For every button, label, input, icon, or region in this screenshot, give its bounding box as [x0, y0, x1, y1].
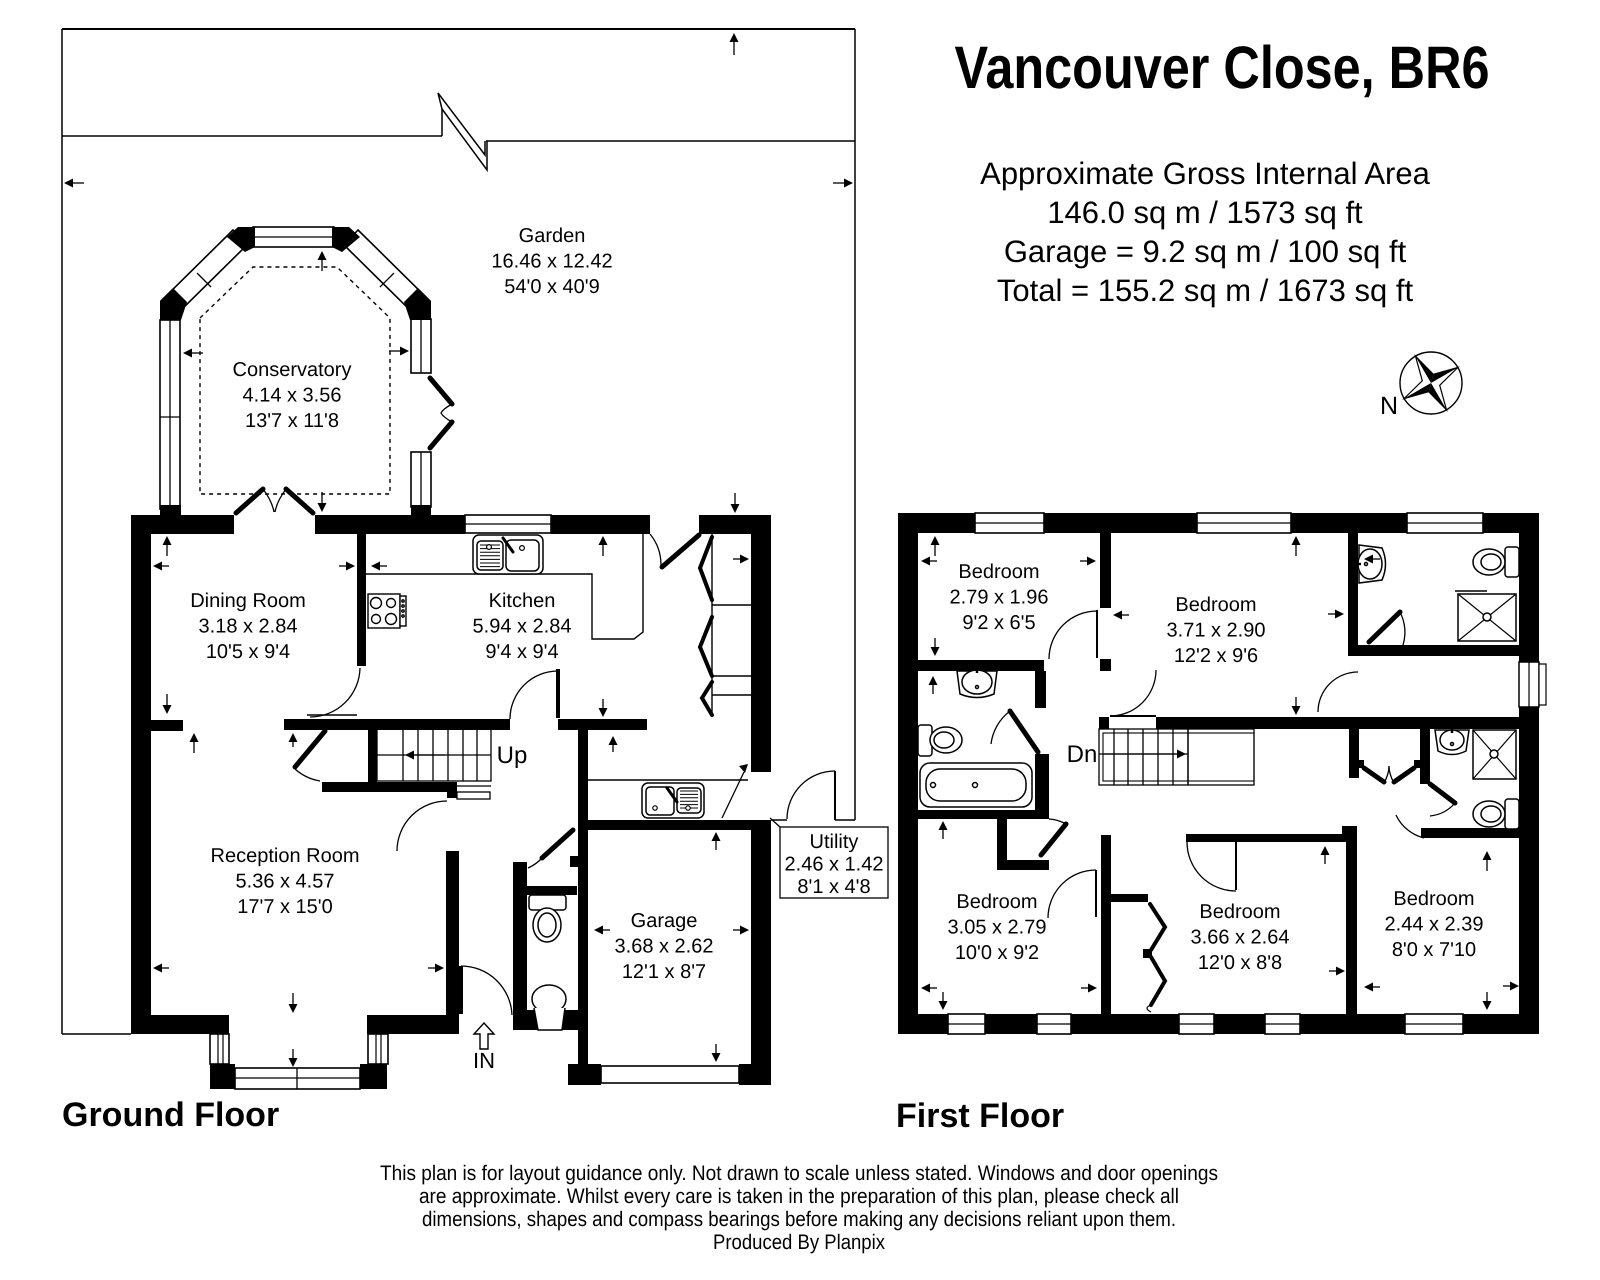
- svg-text:2.44 x 2.39: 2.44 x 2.39: [1385, 913, 1484, 935]
- svg-text:Bedroom: Bedroom: [1175, 594, 1256, 616]
- svg-text:Vancouver Close, BR6: Vancouver Close, BR6: [955, 34, 1490, 101]
- svg-text:This plan is for layout guidan: This plan is for layout guidance only. N…: [380, 1162, 1218, 1185]
- svg-text:Garage = 9.2 sq m / 100 sq ft: Garage = 9.2 sq m / 100 sq ft: [1004, 234, 1407, 269]
- svg-text:8'0 x 7'10: 8'0 x 7'10: [1392, 939, 1476, 961]
- svg-text:dimensions, shapes and compass: dimensions, shapes and compass bearings …: [422, 1208, 1176, 1231]
- svg-text:Bedroom: Bedroom: [956, 891, 1037, 913]
- svg-text:8'1 x 4'8: 8'1 x 4'8: [797, 876, 870, 898]
- svg-text:10'5 x 9'4: 10'5 x 9'4: [206, 641, 290, 663]
- svg-text:12'1 x 8'7: 12'1 x 8'7: [622, 961, 706, 983]
- svg-text:146.0 sq m / 1573 sq ft: 146.0 sq m / 1573 sq ft: [1047, 195, 1363, 230]
- svg-text:10'0 x 9'2: 10'0 x 9'2: [955, 942, 1039, 964]
- svg-text:5.36 x 4.57: 5.36 x 4.57: [236, 870, 335, 892]
- svg-text:Dining Room: Dining Room: [190, 590, 306, 612]
- svg-text:N: N: [1380, 392, 1398, 420]
- svg-text:Reception Room: Reception Room: [211, 845, 360, 867]
- svg-text:3.68 x 2.62: 3.68 x 2.62: [615, 935, 714, 957]
- svg-text:Kitchen: Kitchen: [489, 590, 556, 612]
- svg-text:2.79 x 1.96: 2.79 x 1.96: [950, 586, 1049, 608]
- svg-text:54'0 x 40'9: 54'0 x 40'9: [504, 276, 600, 298]
- svg-text:16.46 x 12.42: 16.46 x 12.42: [491, 250, 612, 272]
- svg-text:12'2 x 9'6: 12'2 x 9'6: [1174, 645, 1258, 667]
- svg-text:3.71 x 2.90: 3.71 x 2.90: [1167, 619, 1266, 641]
- svg-text:3.66 x 2.64: 3.66 x 2.64: [1191, 926, 1290, 948]
- svg-text:Dn: Dn: [1067, 741, 1098, 768]
- svg-text:Produced By Planpix: Produced By Planpix: [713, 1231, 885, 1254]
- svg-text:Ground Floor: Ground Floor: [62, 1096, 279, 1134]
- svg-text:3.05 x 2.79: 3.05 x 2.79: [948, 916, 1047, 938]
- svg-text:Garden: Garden: [519, 225, 586, 247]
- svg-text:Bedroom: Bedroom: [1393, 888, 1474, 910]
- svg-text:Bedroom: Bedroom: [1199, 901, 1280, 923]
- svg-text:Conservatory: Conservatory: [233, 359, 352, 381]
- svg-text:Garage: Garage: [631, 910, 698, 932]
- svg-text:are approximate. Whilst every: are approximate. Whilst every care is ta…: [419, 1185, 1179, 1208]
- svg-text:17'7 x 15'0: 17'7 x 15'0: [237, 896, 333, 918]
- svg-text:5.94 x 2.84: 5.94 x 2.84: [473, 615, 572, 637]
- svg-text:Approximate Gross Internal Are: Approximate Gross Internal Area: [980, 156, 1430, 191]
- svg-text:Utility: Utility: [810, 831, 859, 853]
- svg-text:Bedroom: Bedroom: [958, 561, 1039, 583]
- svg-text:12'0 x 8'8: 12'0 x 8'8: [1198, 952, 1282, 974]
- svg-text:Up: Up: [497, 742, 528, 769]
- svg-text:Total = 155.2 sq m / 1673 sq f: Total = 155.2 sq m / 1673 sq ft: [997, 273, 1414, 308]
- svg-text:9'4 x 9'4: 9'4 x 9'4: [485, 641, 558, 663]
- svg-text:2.46 x 1.42: 2.46 x 1.42: [785, 854, 884, 876]
- svg-text:13'7 x 11'8: 13'7 x 11'8: [245, 410, 339, 432]
- svg-text:3.18 x 2.84: 3.18 x 2.84: [199, 615, 298, 637]
- svg-text:First Floor: First Floor: [896, 1097, 1064, 1135]
- svg-text:IN: IN: [473, 1048, 495, 1073]
- svg-text:4.14 x 3.56: 4.14 x 3.56: [243, 384, 342, 406]
- svg-text:9'2 x 6'5: 9'2 x 6'5: [962, 612, 1035, 634]
